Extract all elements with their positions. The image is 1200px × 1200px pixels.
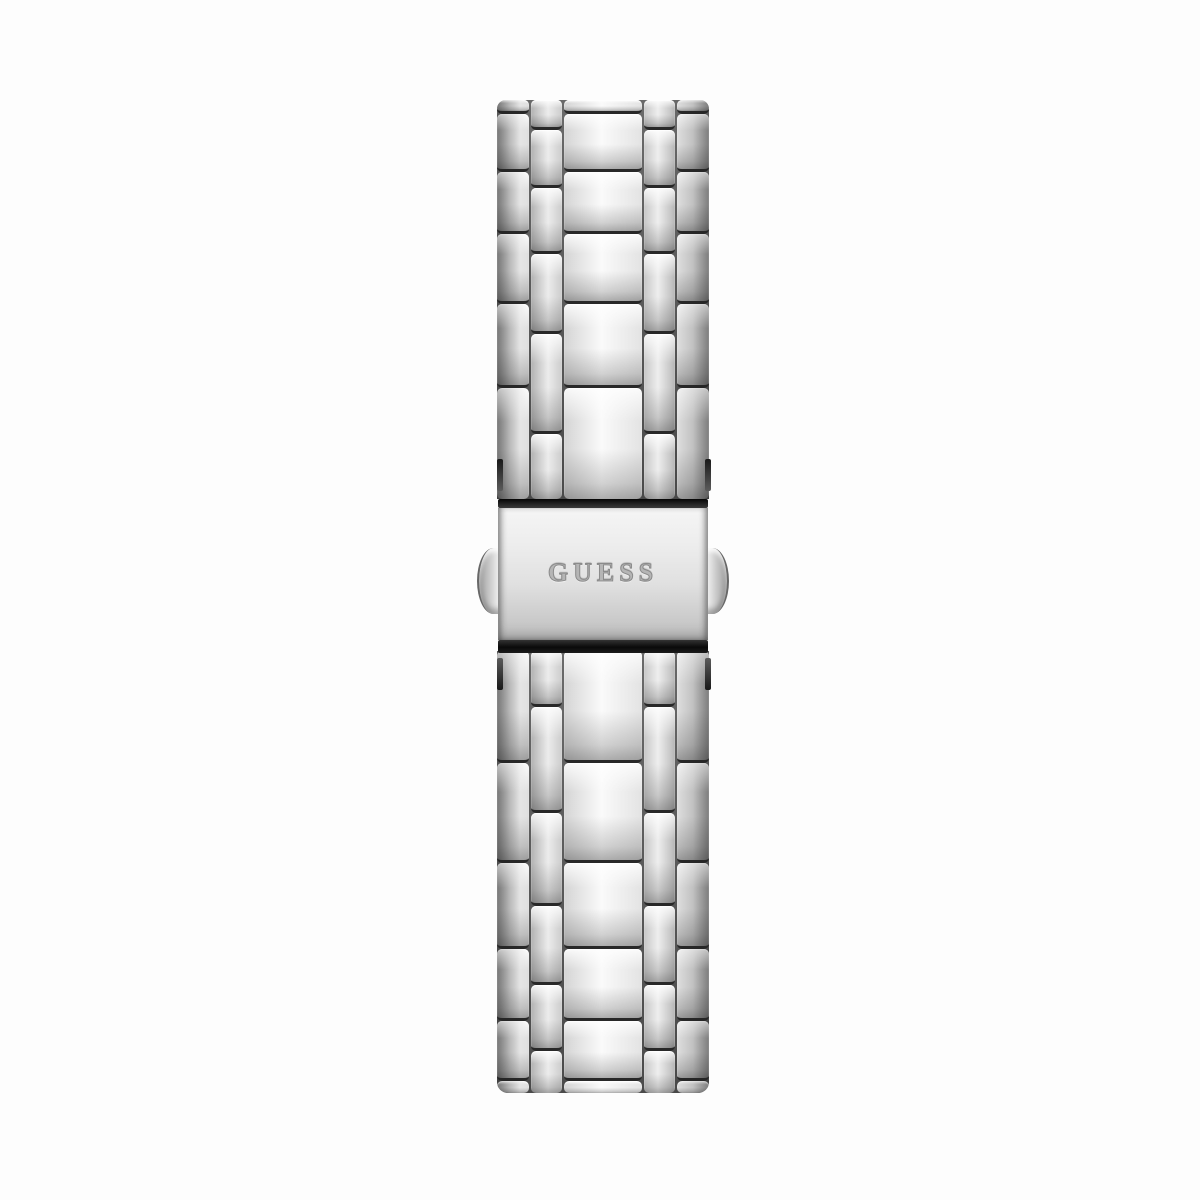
bracelet-link xyxy=(497,949,529,1021)
bracelet-link xyxy=(531,707,562,813)
bracelet-link xyxy=(644,130,675,188)
bracelet-link-column xyxy=(644,100,675,499)
bracelet-link xyxy=(644,254,675,334)
bracelet-link xyxy=(497,1021,529,1081)
bracelet-link xyxy=(677,304,709,388)
bracelet-link xyxy=(531,188,562,254)
bracelet-link xyxy=(564,234,642,304)
bracelet-link xyxy=(564,388,642,499)
bracelet-link xyxy=(677,172,709,234)
bracelet-link xyxy=(531,100,562,130)
bracelet-link xyxy=(531,813,562,906)
bracelet-link xyxy=(677,1021,709,1081)
bracelet-link-column xyxy=(644,651,675,1093)
bracelet-link-column xyxy=(677,100,709,499)
bracelet-link-column xyxy=(531,100,562,499)
bracelet-link xyxy=(531,334,562,434)
bracelet-link xyxy=(497,100,529,114)
bracelet-link xyxy=(497,1081,529,1093)
bracelet-link xyxy=(677,234,709,304)
product-photo-canvas: GUESS xyxy=(0,0,1200,1200)
bracelet-link xyxy=(644,1051,675,1093)
bracelet-link xyxy=(497,304,529,388)
clasp-bottom-bar xyxy=(498,640,708,653)
bracelet-link-column xyxy=(497,651,529,1093)
brand-engraving: GUESS xyxy=(498,558,708,588)
bracelet-link-column xyxy=(677,651,709,1093)
bracelet-lower-band xyxy=(497,651,709,1093)
bracelet-link-column xyxy=(564,651,642,1093)
bracelet-link xyxy=(677,949,709,1021)
bracelet-link xyxy=(531,1051,562,1093)
bracelet-link-column xyxy=(564,100,642,499)
bracelet-link xyxy=(644,906,675,985)
bracelet-link xyxy=(564,763,642,863)
bracelet-link xyxy=(531,651,562,707)
bracelet-link xyxy=(564,651,642,763)
bracelet-link-column xyxy=(531,651,562,1093)
clasp-hinge-bottom-left xyxy=(497,658,503,690)
bracelet-link xyxy=(644,334,675,434)
clasp-plate: GUESS xyxy=(498,508,708,640)
bracelet-link xyxy=(531,906,562,985)
bracelet-link xyxy=(531,130,562,188)
bracelet-link xyxy=(644,100,675,130)
bracelet-link xyxy=(644,434,675,499)
bracelet-link xyxy=(644,188,675,254)
bracelet-link xyxy=(644,651,675,707)
bracelet-link xyxy=(564,172,642,234)
bracelet-link-column xyxy=(497,100,529,499)
bracelet-link xyxy=(677,863,709,949)
bracelet-link xyxy=(564,304,642,388)
bracelet-link xyxy=(531,985,562,1051)
bracelet-link xyxy=(677,114,709,172)
bracelet-link xyxy=(497,114,529,172)
bracelet-link xyxy=(677,1081,709,1093)
bracelet-link xyxy=(564,1021,642,1081)
bracelet-link xyxy=(497,763,529,863)
bracelet-upper-band xyxy=(497,100,709,499)
bracelet-link xyxy=(644,813,675,906)
bracelet-link xyxy=(531,254,562,334)
bracelet-link xyxy=(677,100,709,114)
bracelet-link xyxy=(564,949,642,1021)
folding-clasp: GUESS xyxy=(498,499,708,653)
bracelet-link xyxy=(564,114,642,172)
bracelet-link xyxy=(497,863,529,949)
bracelet-link xyxy=(564,1081,642,1093)
bracelet-link xyxy=(677,763,709,863)
bracelet-link xyxy=(497,234,529,304)
bracelet-link xyxy=(564,863,642,949)
bracelet-link xyxy=(497,172,529,234)
clasp-top-bar xyxy=(498,499,708,508)
bracelet-link xyxy=(644,985,675,1051)
bracelet-link xyxy=(564,100,642,114)
clasp-hinge-bottom-right xyxy=(705,658,711,690)
bracelet-link xyxy=(644,707,675,813)
clasp-hinge-top-left xyxy=(497,459,503,491)
clasp-hinge-top-right xyxy=(705,459,711,491)
bracelet-link xyxy=(531,434,562,499)
